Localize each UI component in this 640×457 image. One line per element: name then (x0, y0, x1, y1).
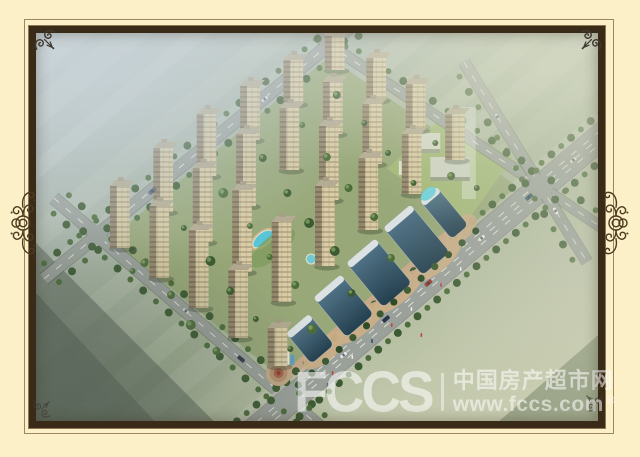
aerial-rendering-scene (36, 33, 598, 421)
framed-aerial-rendering: { "frame": { "mat_color": "#fbf0c7", "ru… (0, 0, 640, 457)
haze-overlay (36, 33, 598, 421)
photo-frame: FCCS 中国房产超市网 www.fccs.com ® (29, 26, 605, 428)
scroll-ornament-icon (602, 186, 630, 260)
registered-mark-icon: ® (606, 394, 615, 406)
